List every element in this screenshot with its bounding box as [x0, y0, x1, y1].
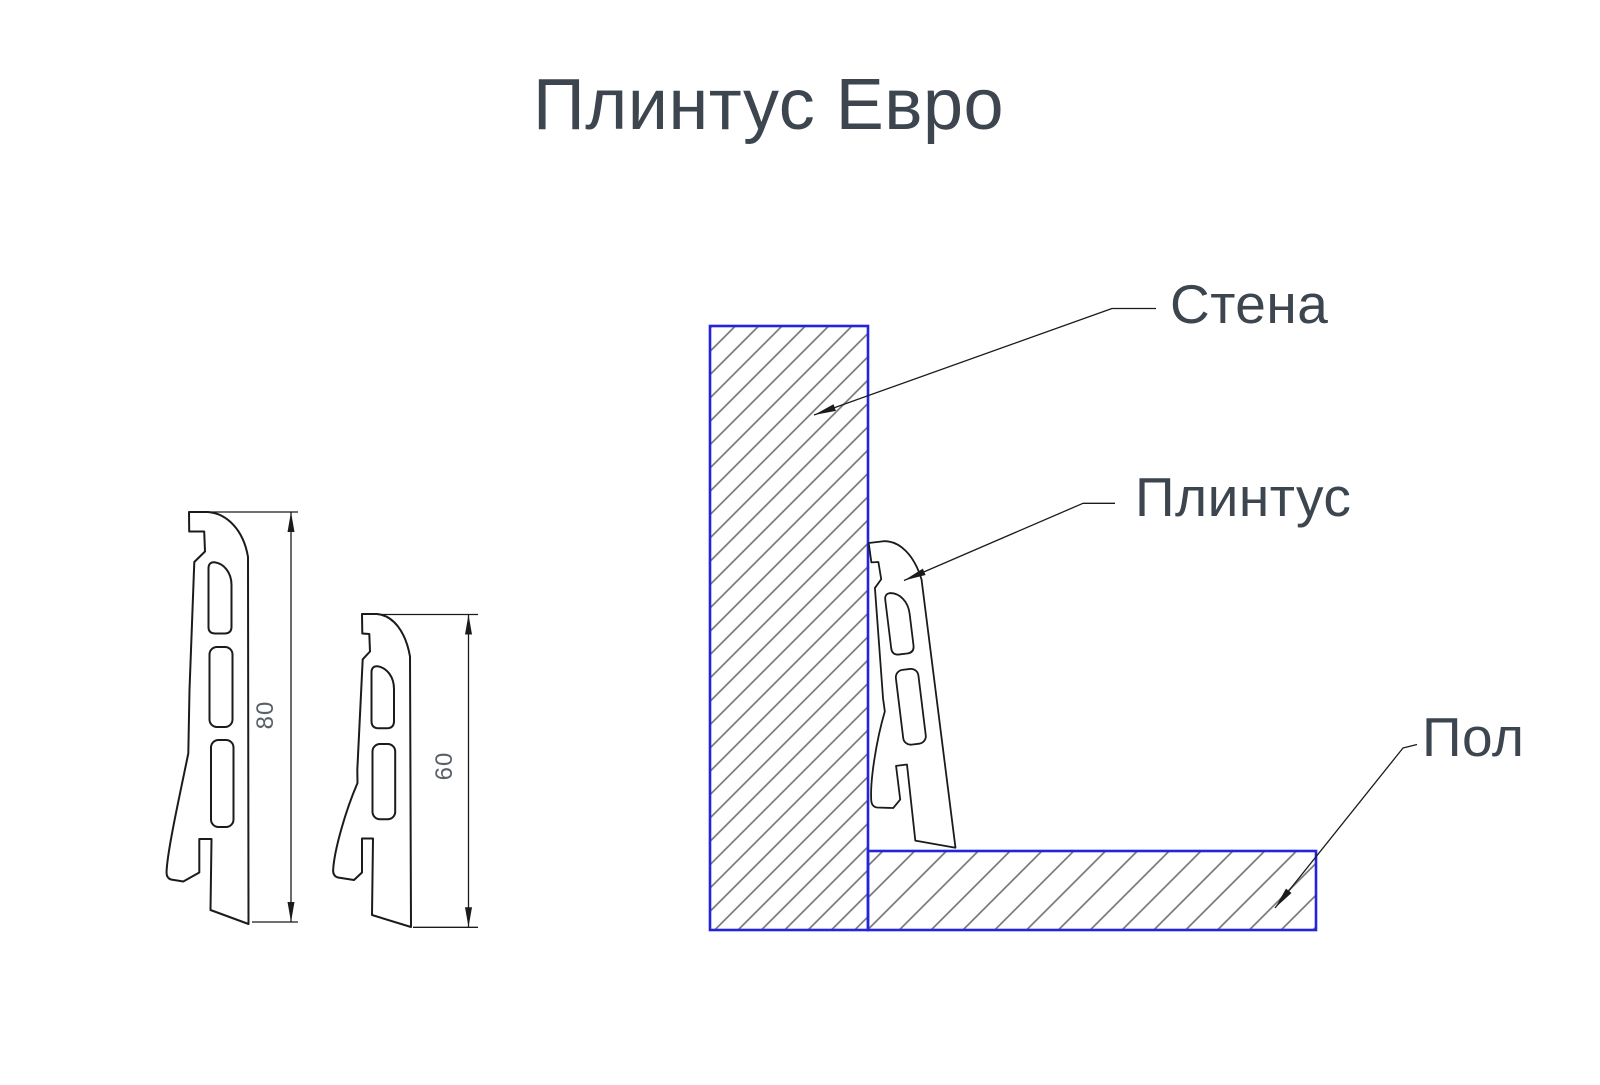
profile-60-dimension-label: 60	[433, 752, 457, 781]
wall-label: Стена	[1170, 277, 1328, 332]
profile-80-slot-2	[210, 647, 233, 727]
profile-80-slot-1	[209, 562, 232, 633]
floor-section	[868, 851, 1316, 930]
wall-section	[710, 326, 868, 930]
plinth-leader-line	[904, 503, 1115, 580]
profile-60-dim-arrow-up	[465, 615, 472, 635]
floor-label: Пол	[1422, 710, 1525, 765]
profile-80-dim-arrow-down	[288, 902, 295, 922]
profile-60-dim-arrow-down	[465, 907, 472, 927]
plinth-label: Плинтус	[1135, 470, 1351, 525]
profile-80-slot-3	[211, 740, 234, 827]
profile-60-slot-1	[372, 666, 395, 728]
page-title: Плинтус Евро	[533, 69, 1004, 141]
profile-80-dim-arrow-up	[288, 512, 295, 532]
profile-80-dimension-label: 80	[254, 701, 278, 730]
plinth-installation-diagram	[0, 0, 1600, 1085]
profile-60-slot-2	[373, 744, 396, 819]
